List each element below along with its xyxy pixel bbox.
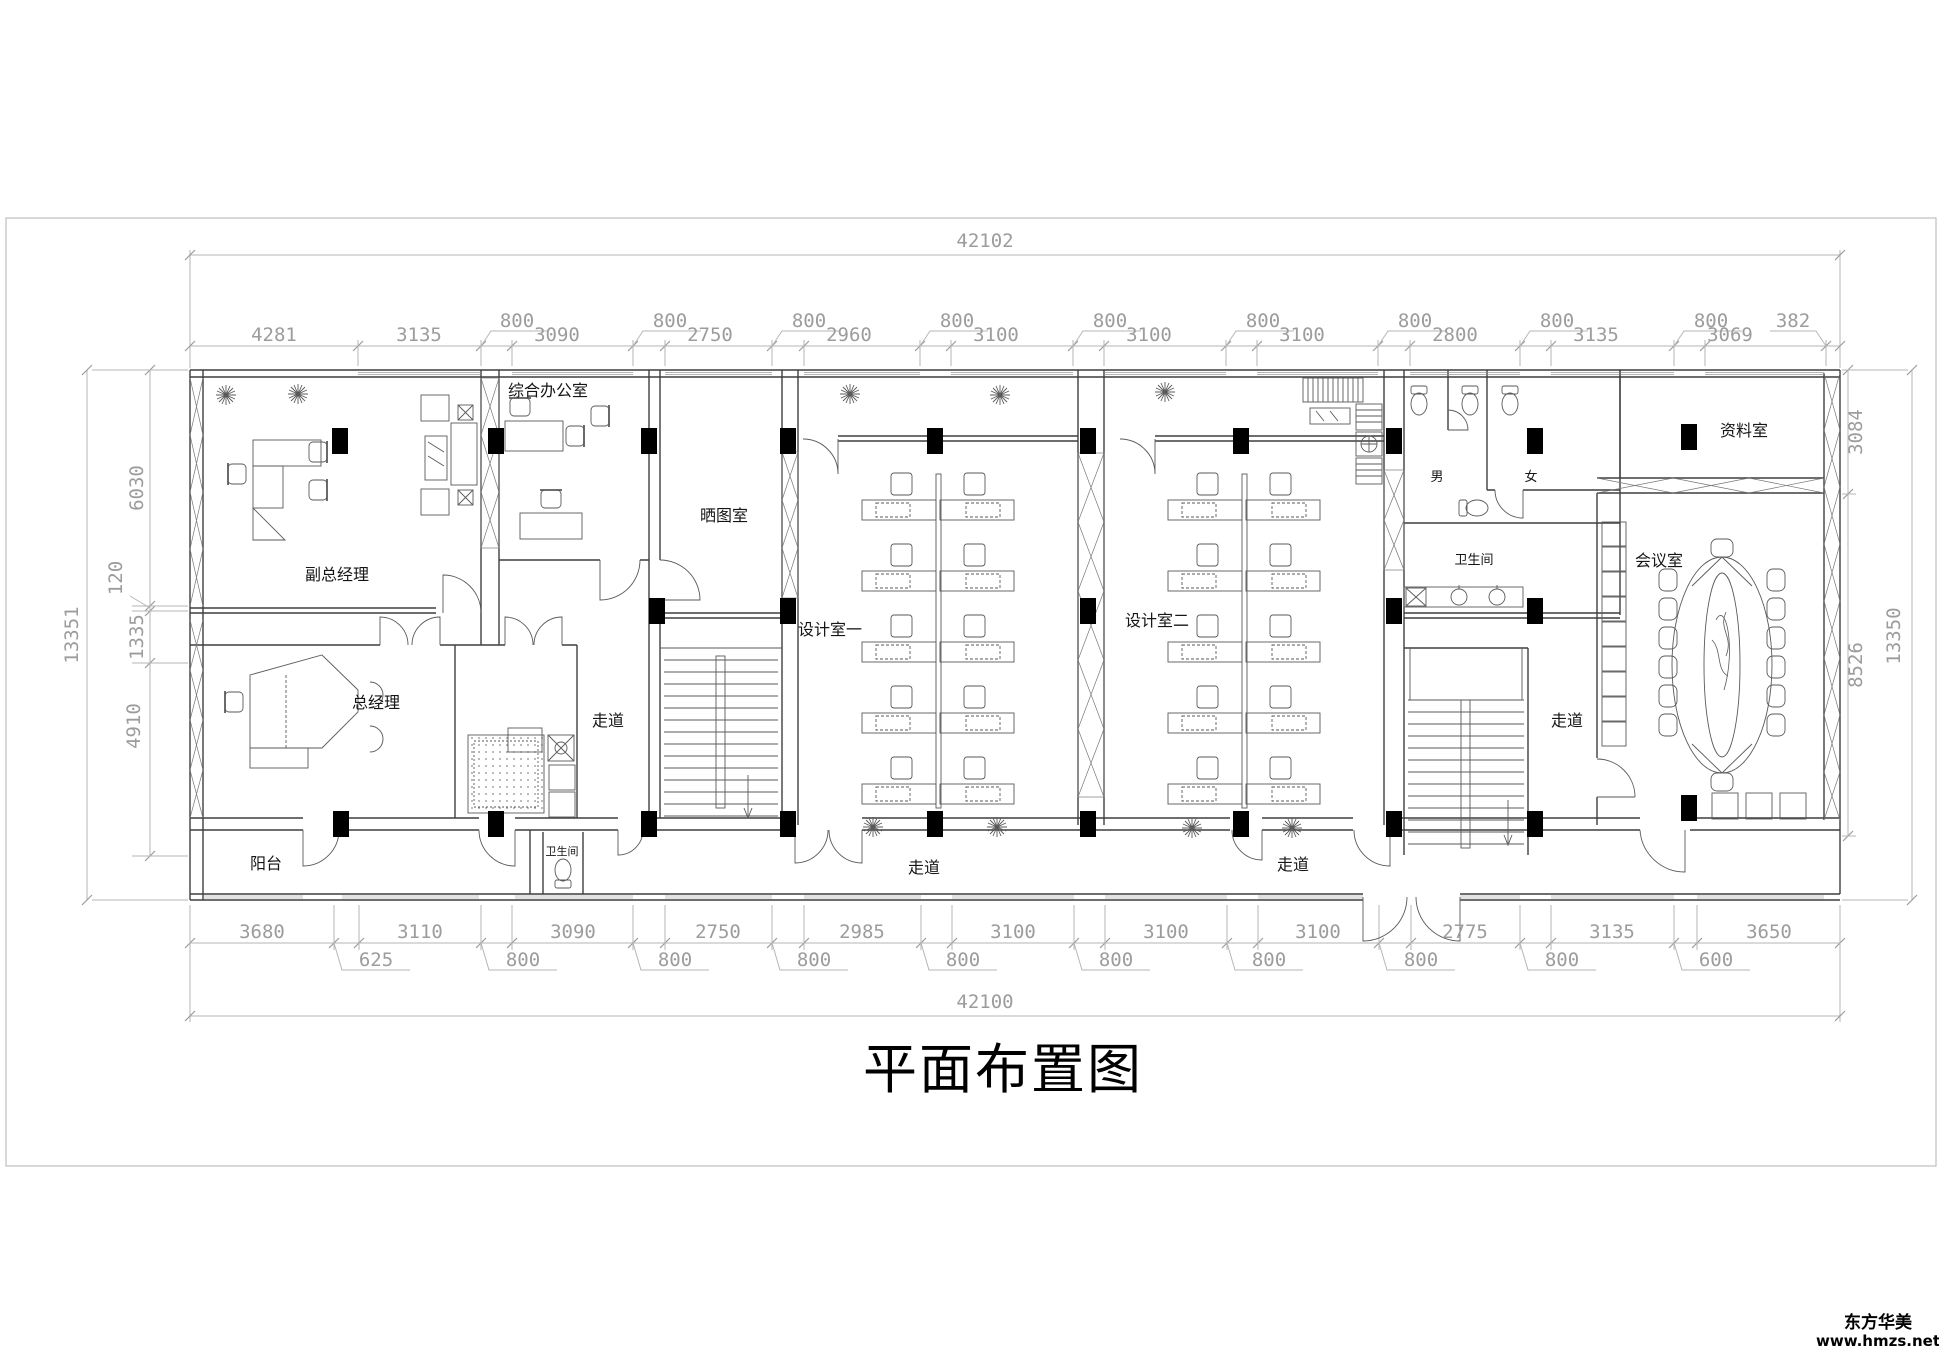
- plants: [216, 382, 1302, 838]
- dim-label: 2960: [826, 324, 872, 346]
- border-frame: [6, 218, 1936, 1166]
- dim-label: 800: [1404, 949, 1438, 971]
- watermark-name: 东方华美: [1844, 1312, 1913, 1333]
- dim-label: 3100: [1126, 324, 1172, 346]
- dim-label: 13351: [61, 606, 83, 663]
- dim-label: 120: [105, 561, 127, 595]
- room-label-corridor-right: 走道: [1551, 711, 1583, 730]
- dim-label: 3090: [550, 921, 596, 943]
- room-label-male: 男: [1430, 470, 1443, 485]
- room-label-gm: 总经理: [352, 693, 400, 712]
- dim-label: 2750: [695, 921, 741, 943]
- dim-label: 800: [1093, 310, 1127, 332]
- dim-label: 42102: [956, 230, 1013, 252]
- dim-label: 800: [1545, 949, 1579, 971]
- dim-label: 3100: [973, 324, 1019, 346]
- dim-label: 4910: [123, 703, 145, 749]
- hatch-bands: [190, 373, 1840, 820]
- dim-label: 800: [792, 310, 826, 332]
- room-label-blueprint: 晒图室: [700, 506, 748, 525]
- watermark-url: www.hmzs.net: [1816, 1332, 1939, 1350]
- dimension-layer: [82, 250, 1917, 1022]
- dim-label: 800: [1252, 949, 1286, 971]
- room-label-design2: 设计室二: [1125, 611, 1189, 630]
- dim-label: 3100: [990, 921, 1036, 943]
- dim-label: 800: [1246, 310, 1280, 332]
- dim-label: 3135: [1573, 324, 1619, 346]
- floor-plan-page: 42102 4281 3135 3090 2750 2960 3100 3100…: [0, 0, 1939, 1352]
- dim-label: 1335: [126, 614, 148, 660]
- stairs-left: [660, 648, 782, 818]
- door-arcs: [303, 410, 1685, 941]
- room-label-female: 女: [1524, 469, 1537, 485]
- dim-label: 3090: [534, 324, 580, 346]
- dim-label: 800: [1540, 310, 1574, 332]
- room-label-deputy-gm: 副总经理: [305, 565, 369, 584]
- dim-label: 2750: [687, 324, 733, 346]
- dim-label: 800: [946, 949, 980, 971]
- room-label-balcony: 阳台: [250, 854, 282, 873]
- dim-label: 3135: [1589, 921, 1635, 943]
- dim-label: 800: [500, 310, 534, 332]
- room-label-general-office: 综合办公室: [508, 381, 588, 400]
- dim-label: 600: [1699, 949, 1733, 971]
- room-label-meeting: 会议室: [1635, 551, 1683, 570]
- dim-label: 8526: [1845, 642, 1867, 688]
- drawing-title: 平面布置图: [863, 1038, 1143, 1101]
- dim-label: 3110: [397, 921, 443, 943]
- dim-label: 382: [1776, 310, 1810, 332]
- dim-label: 4281: [251, 324, 297, 346]
- room-label-archive: 资料室: [1720, 421, 1768, 440]
- w all-layer: [190, 370, 1840, 900]
- floor-plan-drawing: 42102 4281 3135 3090 2750 2960 3100 3100…: [0, 0, 1939, 1352]
- room-label-corridor-left: 走道: [592, 711, 624, 730]
- dim-label: 2800: [1432, 324, 1478, 346]
- dim-label: 800: [940, 310, 974, 332]
- dim-label: 800: [1694, 310, 1728, 332]
- furniture-layer: [225, 378, 1806, 888]
- dimension-text-layer: 42102 4281 3135 3090 2750 2960 3100 3100…: [61, 230, 1905, 1013]
- dim-label: 3135: [396, 324, 442, 346]
- dim-label: 800: [1099, 949, 1133, 971]
- dim-label: 42100: [956, 991, 1013, 1013]
- dim-label: 800: [658, 949, 692, 971]
- dim-label: 2775: [1442, 921, 1488, 943]
- dim-label: 2985: [839, 921, 885, 943]
- dim-label: 6030: [126, 465, 148, 511]
- dim-label: 625: [359, 949, 393, 971]
- dim-label: 800: [506, 949, 540, 971]
- dim-label: 3100: [1279, 324, 1325, 346]
- room-label-corridor-center2: 走道: [1277, 855, 1309, 874]
- dim-label: 3100: [1295, 921, 1341, 943]
- dim-label: 800: [797, 949, 831, 971]
- dim-label: 800: [653, 310, 687, 332]
- dim-label: 3084: [1845, 409, 1867, 455]
- room-label-restroom-small: 卫生间: [546, 844, 579, 858]
- window-glazing: [203, 372, 1824, 898]
- room-label-restroom: 卫生间: [1454, 553, 1493, 568]
- dim-label: 13350: [1883, 607, 1905, 664]
- dim-label: 3650: [1746, 921, 1792, 943]
- dim-label: 800: [1398, 310, 1432, 332]
- dim-label: 3680: [239, 921, 285, 943]
- dim-label: 3100: [1143, 921, 1189, 943]
- room-label-design1: 设计室一: [798, 620, 862, 639]
- room-label-corridor-center: 走道: [908, 858, 940, 877]
